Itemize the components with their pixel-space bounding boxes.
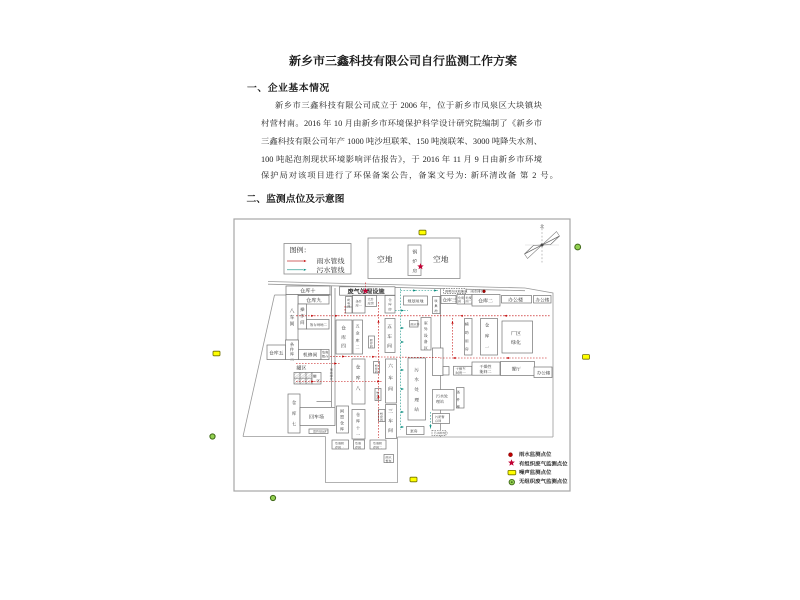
svg-text:五金库二: 五金库二 [355, 323, 361, 352]
svg-text:收集池: 收集池 [433, 299, 438, 314]
svg-text:暂存间: 暂存间 [374, 364, 378, 374]
svg-text:污水管线: 污水管线 [317, 265, 345, 275]
svg-text:餐厅: 餐厅 [512, 367, 522, 373]
svg-text:配电间: 配电间 [347, 298, 351, 309]
svg-text:办公楼: 办公楼 [537, 371, 551, 377]
svg-text:噪声监测点位: 噪声监测点位 [519, 468, 552, 476]
svg-text:雨水井: 雨水井 [411, 323, 420, 327]
svg-text:锅炉房: 锅炉房 [411, 249, 418, 277]
svg-text:办公楼: 办公楼 [508, 296, 523, 303]
svg-text:室外设备区: 室外设备区 [423, 320, 429, 351]
svg-text:仓库房: 仓库房 [387, 298, 392, 312]
svg-text:六车间: 六车间 [387, 364, 394, 397]
svg-text:能间二: 能间二 [480, 369, 492, 375]
svg-text:仓库一: 仓库一 [484, 323, 490, 356]
svg-text:回车场: 回车场 [309, 414, 324, 421]
svg-text:间一: 间一 [458, 300, 464, 304]
svg-text:办公楼: 办公楼 [536, 297, 550, 303]
svg-text:仓库四: 仓库四 [340, 325, 347, 353]
svg-text:罐区: 罐区 [297, 365, 307, 372]
svg-text:条件库二: 条件库二 [289, 342, 295, 361]
svg-text:仓库七: 仓库七 [291, 400, 297, 432]
svg-text:暂存场地二: 暂存场地二 [310, 322, 328, 327]
svg-text:间二: 间二 [466, 300, 472, 304]
svg-text:北: 北 [540, 224, 545, 230]
svg-text:仓库三: 仓库三 [443, 298, 457, 304]
svg-text:操作间: 操作间 [299, 307, 305, 327]
svg-text:库一: 库一 [356, 303, 363, 308]
svg-text:宣传信息栏: 宣传信息栏 [313, 430, 328, 434]
svg-text:仓库二: 仓库二 [478, 297, 493, 304]
svg-text:八车间: 八车间 [289, 307, 296, 327]
svg-text:间房一: 间房一 [456, 370, 467, 375]
svg-text:无组织废气监测点位: 无组织废气监测点位 [519, 477, 568, 485]
svg-text:图例：: 图例： [290, 246, 311, 256]
svg-text:空地: 空地 [433, 254, 449, 265]
svg-text:污水排放口: 污水排放口 [434, 431, 448, 435]
svg-text:五车间: 五车间 [386, 324, 393, 352]
svg-text:辅助用房: 辅助用房 [464, 321, 469, 355]
svg-text:暂存: 暂存 [386, 459, 392, 463]
svg-text:暂存间: 暂存间 [376, 391, 380, 401]
svg-text:库房: 库房 [368, 301, 375, 306]
svg-text:仓库八: 仓库八 [355, 364, 362, 397]
svg-text:仓库十一: 仓库十一 [355, 412, 361, 438]
svg-text:暂存间: 暂存间 [369, 339, 373, 349]
svg-text:理站: 理站 [436, 399, 444, 405]
svg-text:雨明沟水收集池: 雨明沟水收集池 [445, 289, 468, 294]
svg-text:绿化: 绿化 [511, 339, 521, 346]
svg-text:厂区: 厂区 [511, 330, 521, 337]
svg-text:存间二: 存间二 [373, 446, 382, 450]
svg-text:暂存间: 暂存间 [380, 412, 384, 422]
svg-text:存间: 存间 [435, 418, 441, 423]
svg-text:空地: 空地 [377, 254, 393, 265]
svg-text:存间: 存间 [355, 446, 361, 450]
svg-text:仓库十: 仓库十 [300, 288, 316, 295]
svg-text:三车间: 三车间 [387, 408, 394, 436]
svg-text:污水处理站: 污水处理站 [414, 367, 420, 417]
svg-text:暂存: 暂存 [322, 354, 328, 359]
svg-text:机修间: 机修间 [303, 352, 318, 359]
svg-text:规划用地: 规划用地 [408, 299, 424, 305]
svg-text:围墙绿化: 围墙绿化 [329, 368, 333, 381]
svg-text:有组织废气监测点位: 有组织废气监测点位 [519, 460, 568, 468]
svg-text:存间一: 存间一 [335, 446, 344, 450]
svg-text:仓库五: 仓库五 [269, 350, 284, 357]
svg-text:雨水监测点位: 雨水监测点位 [519, 450, 552, 458]
svg-text:条件库: 条件库 [456, 390, 461, 412]
svg-text:闲置仓库: 闲置仓库 [339, 408, 345, 432]
svg-text:仓库九: 仓库九 [306, 297, 322, 304]
svg-text:泵房: 泵房 [410, 429, 418, 435]
